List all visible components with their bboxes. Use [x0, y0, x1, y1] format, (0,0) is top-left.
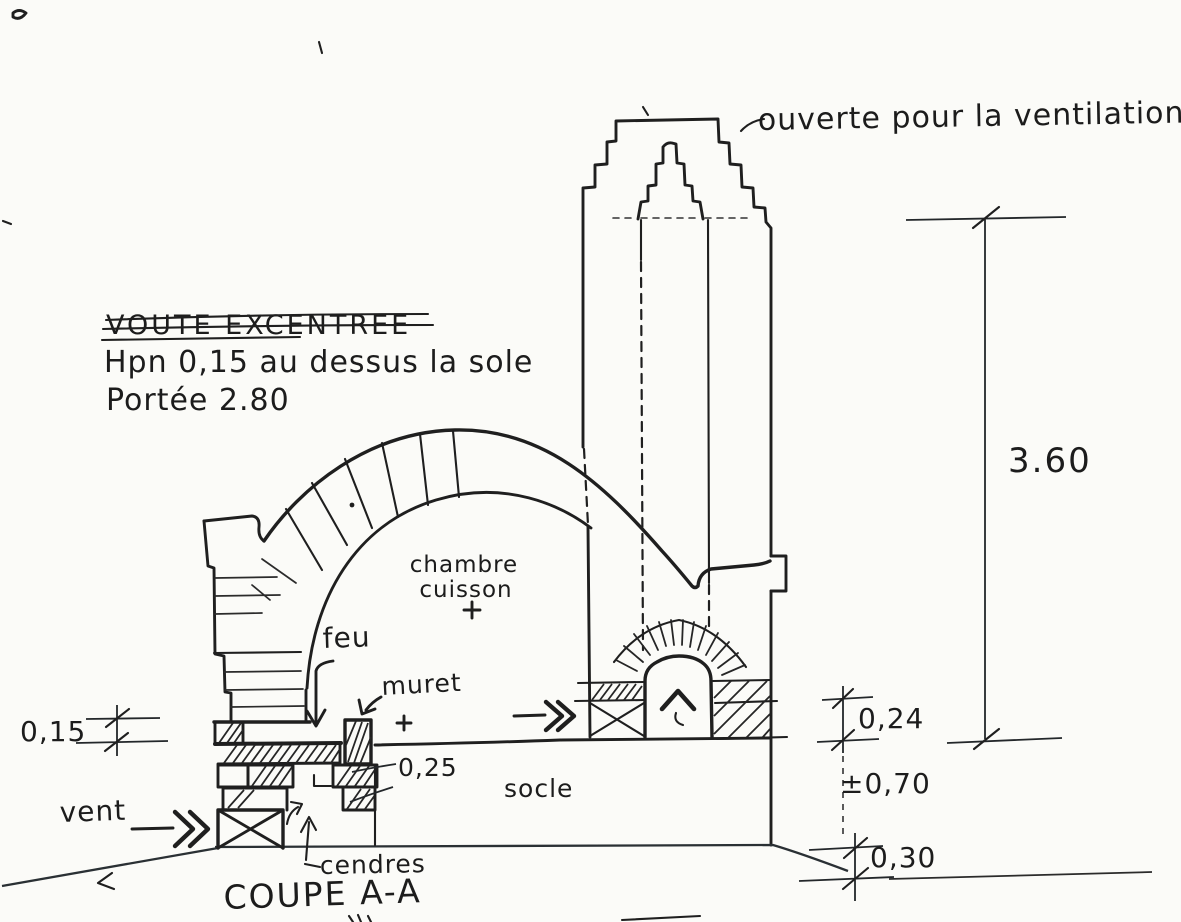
- dim-label-0-70: ±0,70: [840, 767, 931, 800]
- hearth-box-g-hatch: [347, 789, 375, 809]
- sole-right-hatch: [714, 681, 770, 738]
- sole-left-hatch: [592, 684, 642, 700]
- chamber-label-line2: cuisson: [419, 577, 512, 603]
- sole-slab-top: [215, 743, 341, 744]
- arch-extrados: [614, 620, 746, 667]
- updraft-arrow-icon: [662, 691, 694, 709]
- hearth-box-f: [223, 788, 287, 810]
- arch-voussoir-fan: [616, 620, 745, 675]
- hearth-box-d-hatch: [252, 766, 292, 786]
- chamber-cross: [464, 602, 480, 618]
- sketch-canvas: 0,15 0,25 0,24 ±0,70 0,30 3.60 ouverte p…: [0, 0, 1181, 922]
- socle-top-line: [375, 738, 770, 745]
- dimension-socle-0-70: ±0,70: [840, 756, 931, 838]
- sole-slab-hatch: [224, 745, 340, 763]
- hearth-block-a-hatch: [219, 723, 243, 743]
- vent-arrow-shaft: [132, 828, 173, 829]
- socle-label: socle: [504, 774, 573, 803]
- sole-left-cross: [590, 703, 644, 736]
- dimension-left-0-15: 0,15: [20, 705, 168, 756]
- vent-double-chevron-icon: [175, 812, 208, 846]
- dimension-base-0-30: 0,30: [799, 833, 936, 901]
- dim-label-0-15: 0,15: [20, 715, 86, 748]
- vault-note-line3: Portée 2.80: [106, 383, 290, 418]
- handwritten-annotations: ouverte pour la ventilation VOUTE EXCENT…: [59, 96, 1181, 922]
- left-wall: [204, 516, 310, 722]
- muret-label: muret: [381, 668, 463, 701]
- sole-bands: [575, 680, 787, 739]
- chimney-left-wall-lower: [588, 527, 590, 737]
- chimney-outer-steps: [583, 119, 771, 556]
- dimension-overall-3-60: 3.60: [906, 207, 1092, 749]
- scan-specks: [3, 11, 322, 225]
- section-title: COUPE A-A: [223, 871, 422, 917]
- ground-arrowhead: [98, 873, 114, 889]
- vent-label: vent: [59, 794, 127, 829]
- ground-slope-left: [2, 848, 218, 886]
- cendres-arrow: [301, 817, 320, 867]
- ash-slot-bracket: [314, 775, 331, 786]
- socle: [215, 738, 848, 871]
- ventilation-note: ouverte pour la ventilation: [758, 96, 1181, 138]
- reference-cross-marks: [397, 602, 480, 730]
- muret-arrow: [359, 697, 381, 714]
- socle-bottom-line: [215, 845, 848, 871]
- chimney: [583, 107, 786, 845]
- hearth-box-f-hatch: [228, 790, 254, 808]
- masonry-step-line: [214, 652, 301, 653]
- dim-label-3-60: 3.60: [1008, 441, 1092, 481]
- scanned-oven-section-sketch: 0,15 0,25 0,24 ±0,70 0,30 3.60 ouverte p…: [0, 0, 1181, 922]
- dim-label-0-30: 0,30: [870, 841, 936, 874]
- draft-arrow-shaft: [514, 715, 545, 716]
- muret-cross: [397, 716, 411, 730]
- firebox-complex: [215, 720, 377, 848]
- muret-hatch: [346, 721, 371, 764]
- arch-opening: [645, 656, 712, 737]
- dim-slashes: [973, 207, 999, 749]
- cut-off-marks: [349, 915, 700, 922]
- hidden-left-wall-edge: [584, 449, 588, 525]
- flue-left-wall-hidden: [641, 262, 643, 650]
- right-wall-tab: [771, 556, 786, 591]
- hearth-box-white: [218, 765, 248, 787]
- flue-corbel-pyramid: [638, 143, 703, 219]
- chamber-label-line1: chambre: [410, 552, 518, 578]
- masonry-course-lines: [215, 577, 304, 707]
- left-wall-outer-face: [204, 521, 231, 722]
- vault-note-line2: Hpn 0,15 au dessus la sole: [104, 345, 533, 380]
- dim-label-0-25: 0,25: [398, 753, 458, 782]
- sketch-hatch-strokes: [252, 559, 296, 600]
- dim-lines: [76, 705, 168, 756]
- ash-drop-arrow: [287, 802, 302, 824]
- left-wall-cap: [204, 516, 264, 541]
- vent-duct-cross: [218, 810, 283, 848]
- voussoir-dot: [350, 503, 355, 508]
- dim-label-0-24: 0,24: [858, 702, 924, 735]
- flue-mouth-arch: [614, 620, 746, 737]
- dimension-sole-0-24: 0,24: [817, 686, 924, 753]
- flue-right-wall: [708, 220, 709, 583]
- feu-arrow: [307, 661, 333, 726]
- updraft-arrow-tail: [675, 713, 683, 725]
- draft-double-chevron-icon: [546, 702, 574, 730]
- ground-lines: [2, 848, 1152, 889]
- fire-label: feu: [322, 620, 371, 655]
- chimney-top-tick: [643, 107, 648, 115]
